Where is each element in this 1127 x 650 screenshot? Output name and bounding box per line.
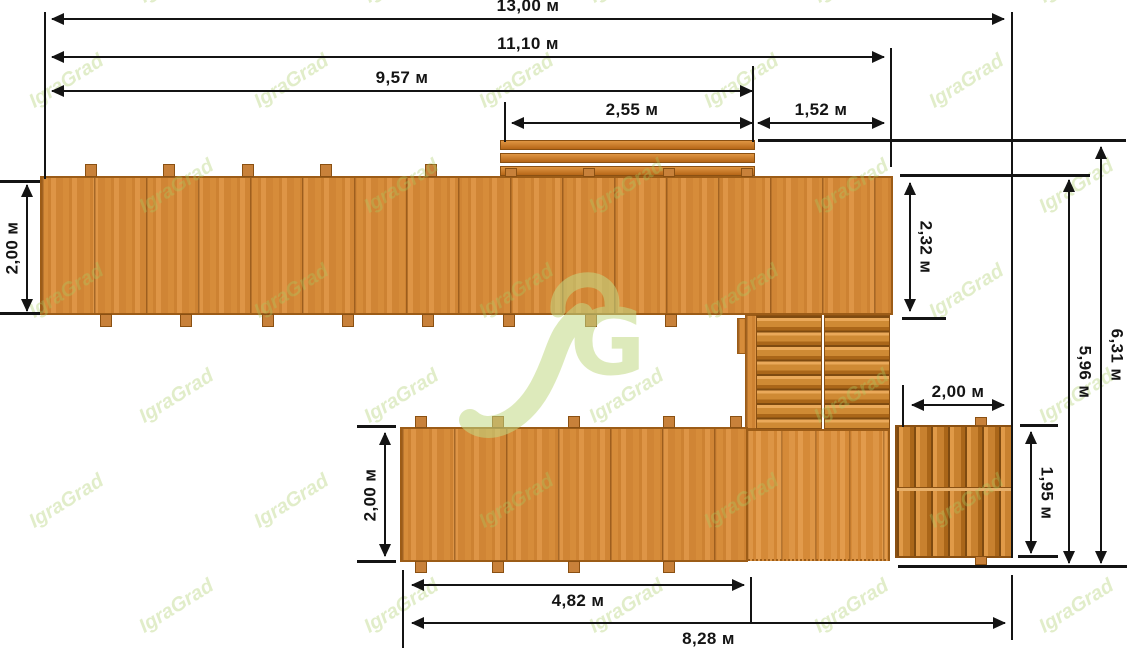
post — [730, 416, 742, 428]
watermark-text: IgraGrad — [360, 365, 443, 429]
blueprint-canvas: IgraGradIgraGradIgraGradIgraGradIgraGrad… — [0, 0, 1127, 650]
post — [663, 416, 675, 428]
dimension-gap-width: 1,52 м — [758, 122, 884, 124]
dimension-label: 2,00 м — [932, 383, 985, 400]
dimension-total-depth: 6,31 м — [1100, 147, 1102, 563]
dimension-label: 4,82 м — [552, 592, 605, 609]
watermark-text: IgraGrad — [1035, 155, 1118, 219]
watermark-text: IgraGrad — [135, 575, 218, 639]
post — [583, 168, 595, 177]
post — [242, 164, 254, 177]
post — [422, 314, 434, 327]
dimension-total-width: 13,00 м — [52, 18, 1004, 20]
ext-line — [357, 425, 396, 428]
dimension-lower-stairs-depth: 1,95 м — [1030, 432, 1032, 553]
watermark-text: IgraGrad — [1035, 575, 1118, 639]
watermark-text: IgraGrad — [135, 0, 218, 8]
ext-line — [902, 317, 946, 320]
tower-staircase-right-flight — [824, 315, 890, 429]
ext-line — [898, 565, 1127, 568]
watermark-text: IgraGrad — [700, 50, 783, 114]
post — [163, 164, 175, 177]
dimension-lower-walkway-length: 4,82 м — [412, 584, 744, 586]
dimension-label: 9,57 м — [376, 69, 429, 86]
watermark-text: IgraGrad — [1035, 0, 1118, 8]
ext-line — [902, 385, 904, 427]
watermark-text: IgraGrad — [25, 50, 108, 114]
ext-line — [758, 139, 1126, 142]
igragrad-logo: G — [452, 252, 652, 452]
post — [415, 561, 427, 573]
post — [415, 416, 427, 428]
post — [492, 561, 504, 573]
logo-letter: G — [570, 289, 646, 396]
entry-stairs — [895, 425, 1013, 558]
watermark-text: IgraGrad — [25, 470, 108, 534]
dimension-lower-stairs-width: 2,00 м — [912, 404, 1004, 406]
post — [425, 164, 437, 177]
dimension-platform-depth: 2,32 м — [909, 183, 911, 311]
post — [568, 561, 580, 573]
dimension-lower-walkway-width: 2,00 м — [384, 433, 386, 556]
post — [665, 314, 677, 327]
ext-line — [504, 102, 506, 142]
dimension-label: 13,00 м — [497, 0, 560, 14]
dimension-upper-walkway-length: 9,57 м — [52, 90, 752, 92]
dimension-label: 2,32 м — [918, 221, 935, 274]
dimension-label: 2,55 м — [606, 101, 659, 118]
post — [85, 164, 97, 177]
bench — [500, 140, 755, 173]
ext-line — [0, 312, 40, 315]
ext-line — [1018, 555, 1058, 558]
post — [975, 556, 987, 565]
ext-line — [752, 66, 754, 142]
post — [663, 561, 675, 573]
bench-plank — [500, 140, 755, 150]
ext-line — [1020, 424, 1058, 427]
watermark-text: IgraGrad — [925, 50, 1008, 114]
watermark-text: IgraGrad — [250, 470, 333, 534]
watermark-text: IgraGrad — [585, 0, 668, 8]
dimension-label: 1,95 м — [1039, 466, 1056, 519]
ext-line — [357, 560, 396, 563]
ext-line — [890, 48, 892, 167]
dimension-label: 1,52 м — [795, 101, 848, 118]
dimension-upper-walkway-width: 2,00 м — [26, 185, 28, 311]
post — [663, 168, 675, 177]
post — [100, 314, 112, 327]
ext-line — [0, 180, 40, 183]
watermark-text: IgraGrad — [810, 575, 893, 639]
dimension-bottom-width: 8,28 м — [412, 622, 1005, 624]
ext-line — [900, 174, 1090, 177]
dimension-bench-length: 2,55 м — [512, 122, 752, 124]
watermark-text: IgraGrad — [360, 0, 443, 8]
post — [320, 164, 332, 177]
post — [262, 314, 274, 327]
dimension-upper-width: 11,10 м — [52, 56, 884, 58]
post — [342, 314, 354, 327]
watermark-text: IgraGrad — [810, 0, 893, 8]
ext-line — [1011, 575, 1013, 640]
bench-plank — [500, 153, 755, 163]
dimension-label: 8,28 м — [682, 630, 735, 647]
dimension-label: 6,31 м — [1109, 329, 1126, 382]
bench-plank — [500, 166, 755, 176]
tower-staircase-left-flight — [756, 315, 822, 429]
watermark-text: IgraGrad — [135, 365, 218, 429]
watermark-text: IgraGrad — [925, 260, 1008, 324]
post — [180, 314, 192, 327]
dimension-label: 5,96 м — [1077, 345, 1094, 398]
dimension-label: 2,00 м — [362, 468, 379, 521]
entry-stairs-divider — [897, 487, 1011, 491]
dimension-label: 2,00 м — [4, 222, 21, 275]
dimension-label: 11,10 м — [497, 35, 559, 52]
logo-swoosh — [470, 314, 582, 427]
dimension-deck-depth: 5,96 м — [1068, 180, 1070, 563]
ext-line — [402, 570, 404, 648]
post — [975, 417, 987, 426]
watermark-text: IgraGrad — [475, 50, 558, 114]
tower-lower-platform — [745, 429, 890, 561]
post — [741, 168, 753, 177]
ext-line — [44, 12, 46, 179]
post — [505, 168, 517, 177]
ext-line — [750, 577, 752, 622]
ext-line — [1011, 12, 1013, 558]
watermark-text: IgraGrad — [250, 50, 333, 114]
